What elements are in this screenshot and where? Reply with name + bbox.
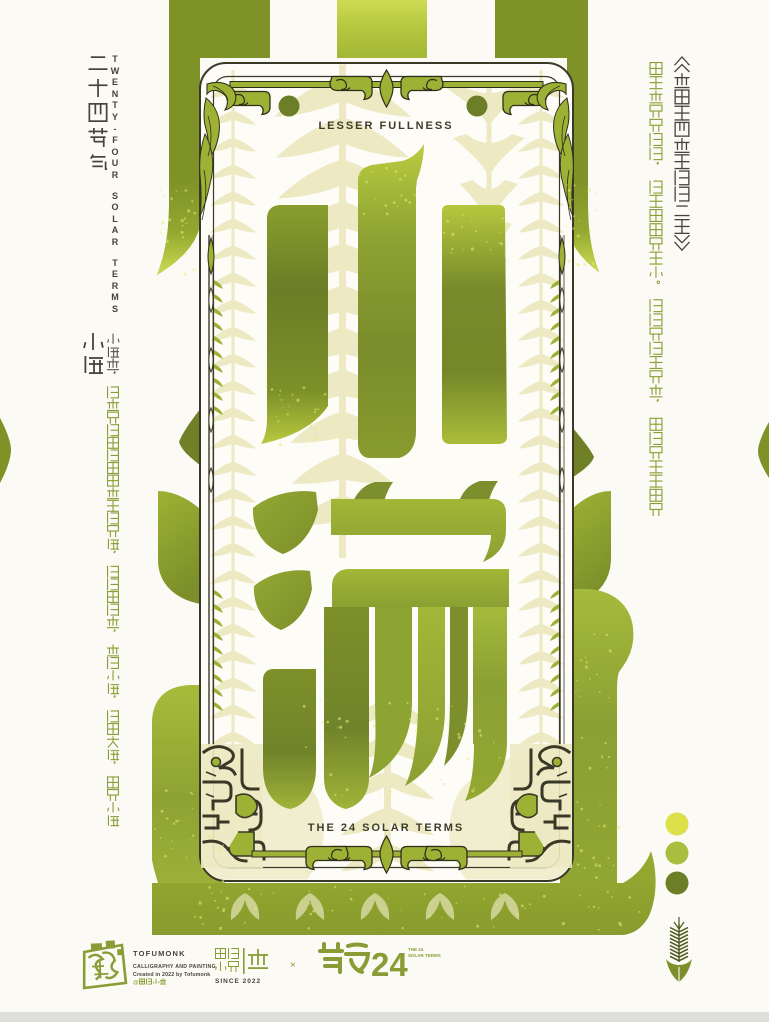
svg-text:CALLIGRAPHY AND PAINTING: CALLIGRAPHY AND PAINTING <box>133 964 216 970</box>
svg-text:THE 24: THE 24 <box>408 947 424 952</box>
svg-text:O: O <box>111 202 118 212</box>
svg-text:T: T <box>112 54 118 64</box>
svg-text:@: @ <box>133 980 139 986</box>
svg-text:Created in 2022 by Tofumonk: Created in 2022 by Tofumonk <box>133 972 210 978</box>
svg-text:R: R <box>112 281 119 291</box>
svg-text:L: L <box>112 214 118 224</box>
svg-text:×: × <box>290 960 296 971</box>
svg-text:24: 24 <box>371 946 408 983</box>
svg-text:R: R <box>112 170 119 180</box>
svg-text:TOFUMONK: TOFUMONK <box>133 949 186 958</box>
svg-text:N: N <box>112 89 119 99</box>
svg-text:O: O <box>111 147 118 157</box>
svg-text:Y: Y <box>112 112 118 122</box>
svg-text:U: U <box>112 158 119 168</box>
svg-text:SINCE 2022: SINCE 2022 <box>215 978 261 985</box>
svg-text:M: M <box>111 292 119 302</box>
svg-text:E: E <box>112 269 118 279</box>
svg-text:A: A <box>112 225 119 235</box>
svg-text:F: F <box>112 135 118 145</box>
svg-text:SOLAR TERMS: SOLAR TERMS <box>408 953 441 958</box>
svg-text:LESSER FULLNESS: LESSER FULLNESS <box>318 120 453 132</box>
svg-text:E: E <box>112 77 118 87</box>
svg-text:THE 24 SOLAR TERMS: THE 24 SOLAR TERMS <box>308 822 464 834</box>
svg-text:T: T <box>112 100 118 110</box>
svg-text:W: W <box>111 66 120 76</box>
svg-text:S: S <box>112 191 118 201</box>
svg-text:-: - <box>114 124 117 134</box>
svg-text:T: T <box>112 258 118 268</box>
svg-text:R: R <box>112 237 119 247</box>
svg-text:S: S <box>112 304 118 314</box>
